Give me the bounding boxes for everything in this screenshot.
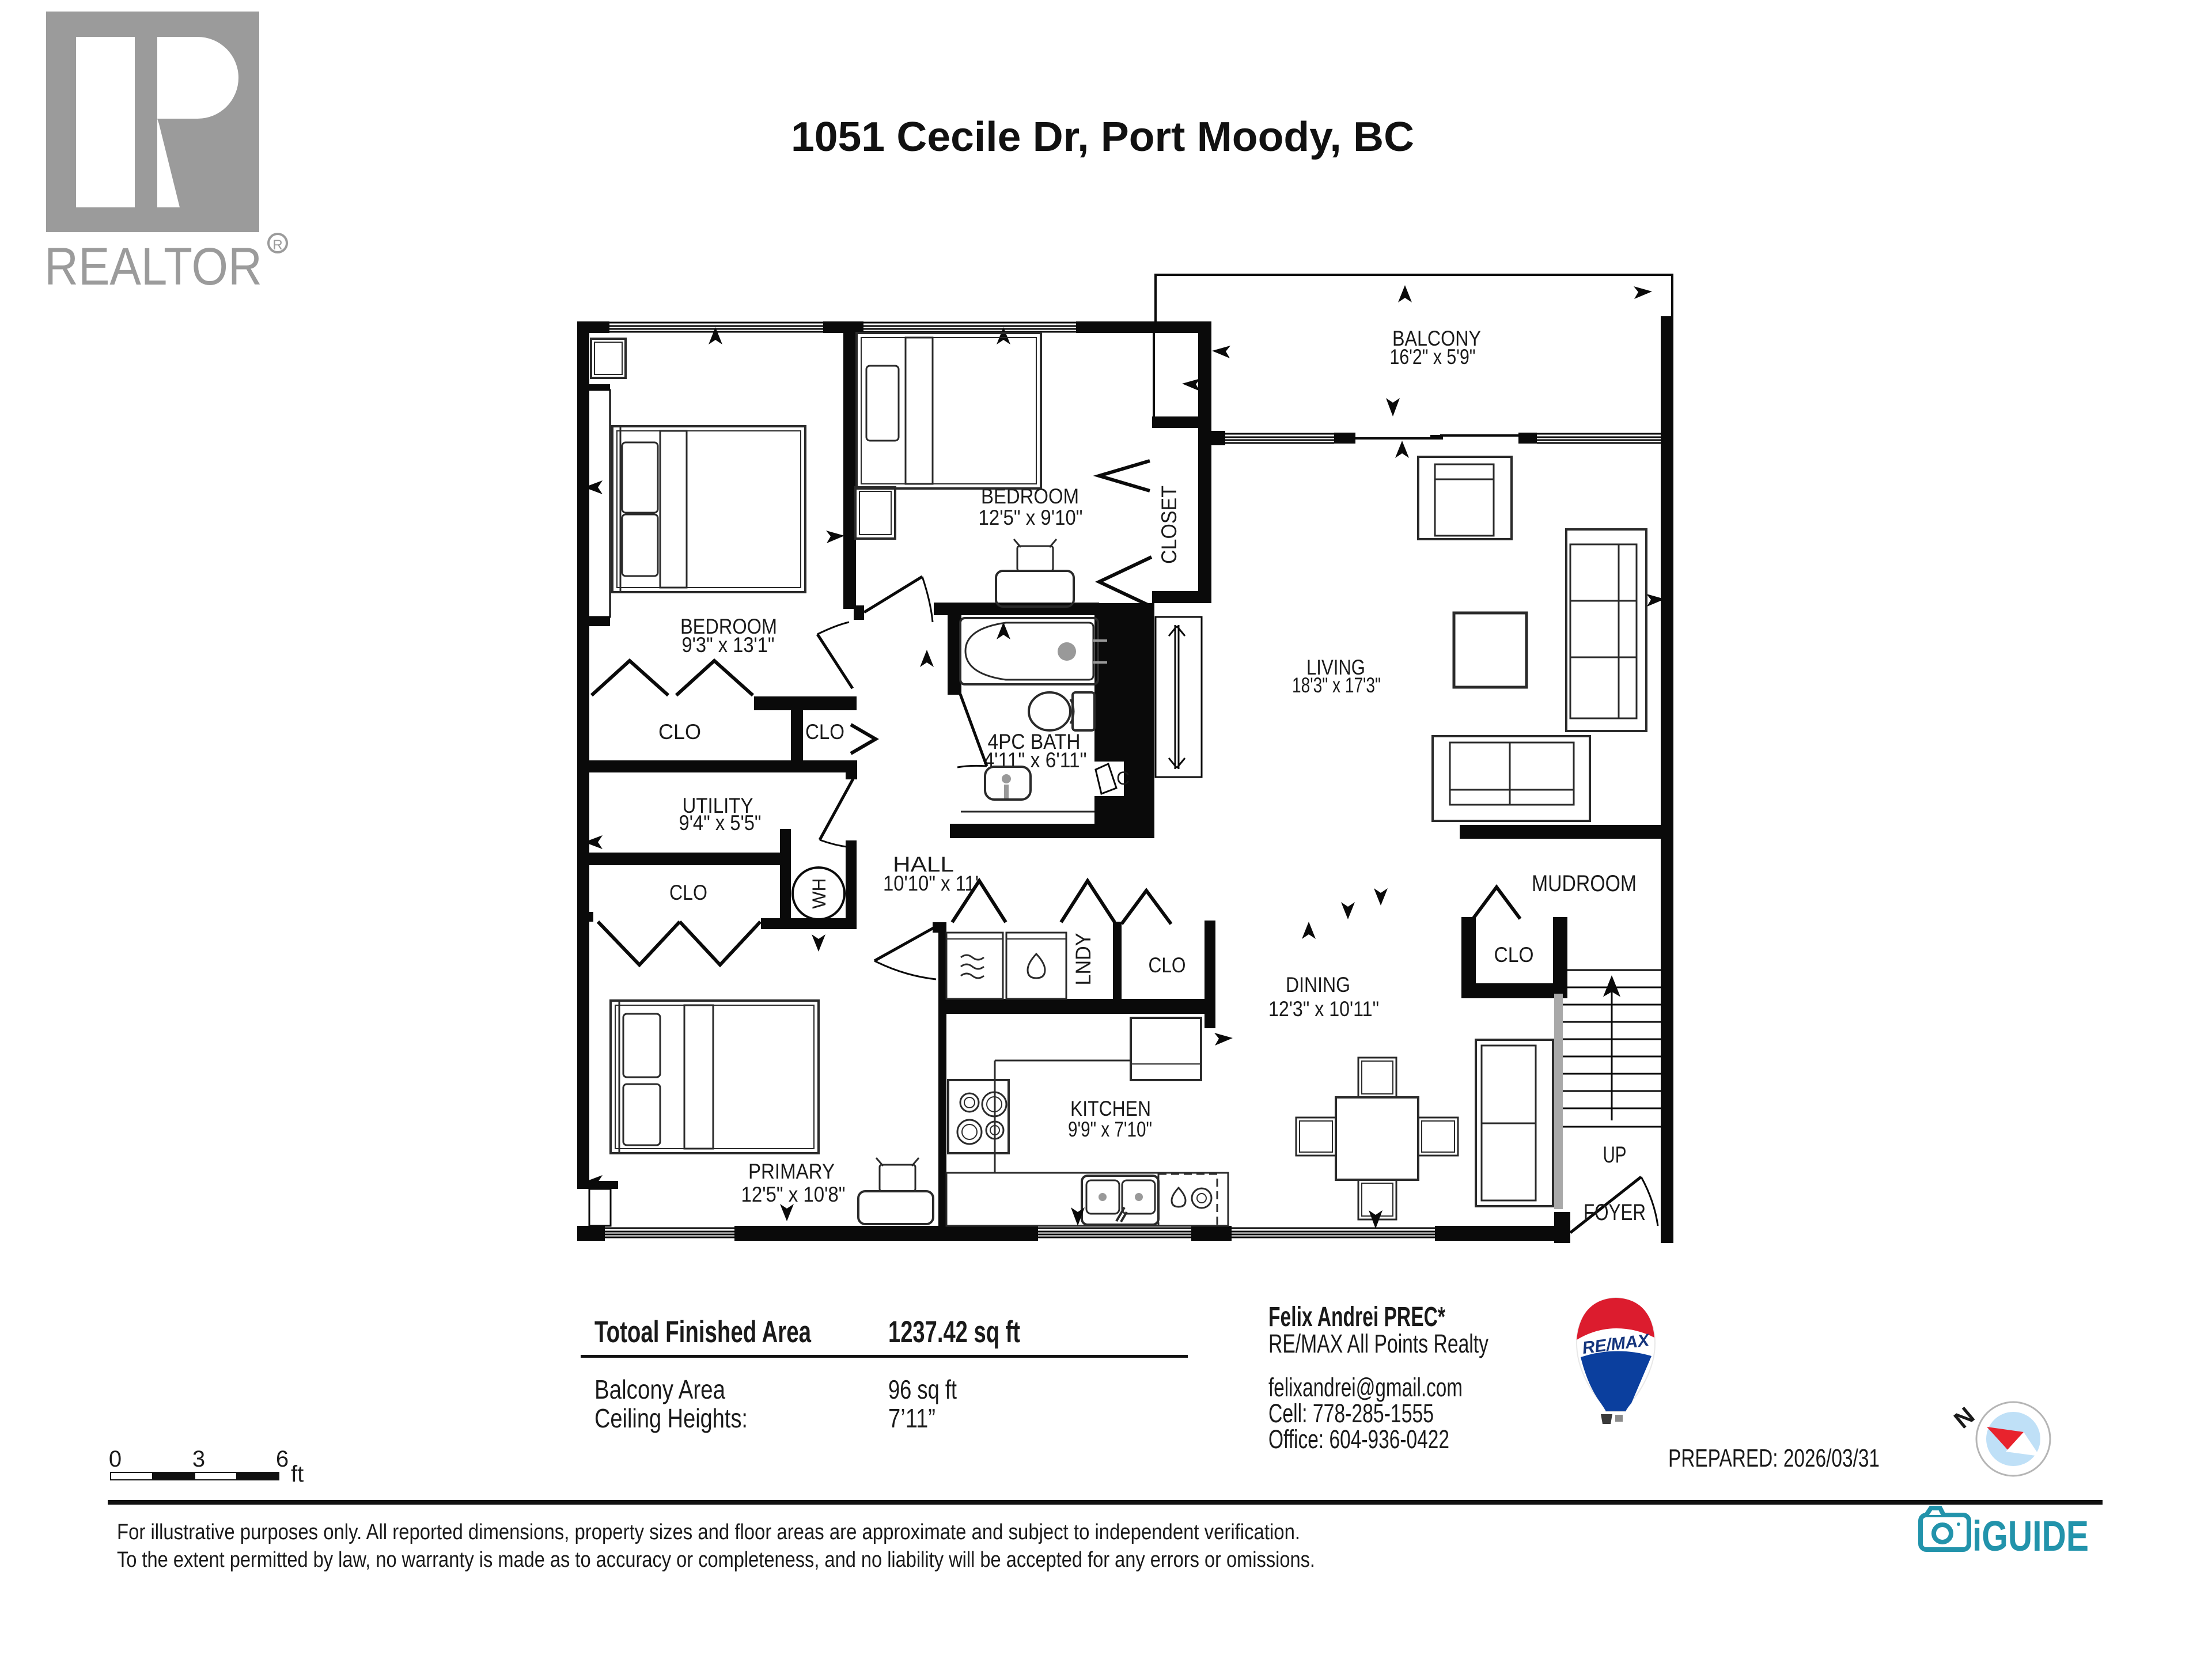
svg-text:WH: WH [809, 878, 829, 908]
svg-text:1237.42 sq ft: 1237.42 sq ft [888, 1315, 1020, 1349]
svg-text:To the extent permitted by law: To the extent permitted by law, no warra… [117, 1548, 1315, 1572]
svg-text:R: R [272, 237, 282, 253]
svg-text:7’11”: 7’11” [888, 1403, 935, 1433]
svg-text:12'5" x 10'8": 12'5" x 10'8" [741, 1183, 846, 1206]
svg-text:ft: ft [291, 1461, 304, 1487]
svg-text:For illustrative purposes only: For illustrative purposes only. All repo… [117, 1520, 1300, 1544]
svg-text:Felix Andrei PREC*: Felix Andrei PREC* [1268, 1302, 1445, 1332]
svg-text:9'4" x 5'5": 9'4" x 5'5" [679, 811, 762, 835]
svg-text:REALTOR: REALTOR [44, 237, 262, 296]
svg-text:9'9" x 7'10": 9'9" x 7'10" [1068, 1118, 1152, 1141]
svg-text:10'10" x 11': 10'10" x 11' [883, 872, 979, 895]
svg-text:PRIMARY: PRIMARY [748, 1160, 835, 1183]
svg-text:12'5" x 9'10": 12'5" x 9'10" [979, 506, 1083, 529]
svg-text:CLO: CLO [658, 720, 701, 744]
svg-text:18'3" x 17'3": 18'3" x 17'3" [1292, 673, 1381, 697]
svg-text:CLO: CLO [669, 881, 707, 904]
svg-text:felixandrei@gmail.com: felixandrei@gmail.com [1268, 1373, 1463, 1402]
svg-text:Totoal Finished Area: Totoal Finished Area [594, 1315, 811, 1349]
svg-text:UP: UP [1603, 1142, 1627, 1168]
svg-text:4'11" x 6'11": 4'11" x 6'11" [984, 748, 1087, 772]
svg-text:RE/MAX All Points Realty: RE/MAX All Points Realty [1268, 1329, 1488, 1358]
svg-text:Balcony Area: Balcony Area [594, 1374, 725, 1404]
svg-text:Office: 604-936-0422: Office: 604-936-0422 [1268, 1425, 1449, 1454]
svg-text:KITCHEN: KITCHEN [1070, 1097, 1151, 1120]
svg-text:iGUIDE: iGUIDE [1972, 1512, 2089, 1560]
svg-text:CLO: CLO [1494, 943, 1534, 967]
svg-text:96 sq ft: 96 sq ft [888, 1374, 957, 1404]
svg-text:CLO: CLO [1149, 953, 1186, 977]
svg-text:CLO: CLO [805, 720, 844, 744]
svg-text:C: C [1116, 768, 1130, 789]
svg-text:PREPARED: 2026/03/31: PREPARED: 2026/03/31 [1668, 1444, 1880, 1472]
svg-text:16'2" x 5'9": 16'2" x 5'9" [1390, 345, 1476, 369]
svg-text:9'3" x 13'1": 9'3" x 13'1" [682, 633, 775, 657]
svg-text:1051 Cecile Dr, Port Moody, BC: 1051 Cecile Dr, Port Moody, BC [791, 114, 1414, 160]
svg-text:6: 6 [276, 1446, 289, 1472]
svg-text:0: 0 [109, 1446, 122, 1472]
svg-text:LNDY: LNDY [1071, 933, 1095, 986]
svg-text:FOYER: FOYER [1584, 1200, 1646, 1225]
svg-text:MUDROOM: MUDROOM [1532, 871, 1637, 896]
svg-text:DINING: DINING [1286, 973, 1350, 997]
svg-text:3: 3 [192, 1446, 205, 1472]
svg-text:CLOSET: CLOSET [1157, 486, 1181, 564]
svg-text:12'3" x 10'11": 12'3" x 10'11" [1268, 997, 1379, 1021]
svg-text:Cell: 778-285-1555: Cell: 778-285-1555 [1268, 1399, 1434, 1428]
svg-text:Ceiling Heights:: Ceiling Heights: [594, 1403, 748, 1433]
